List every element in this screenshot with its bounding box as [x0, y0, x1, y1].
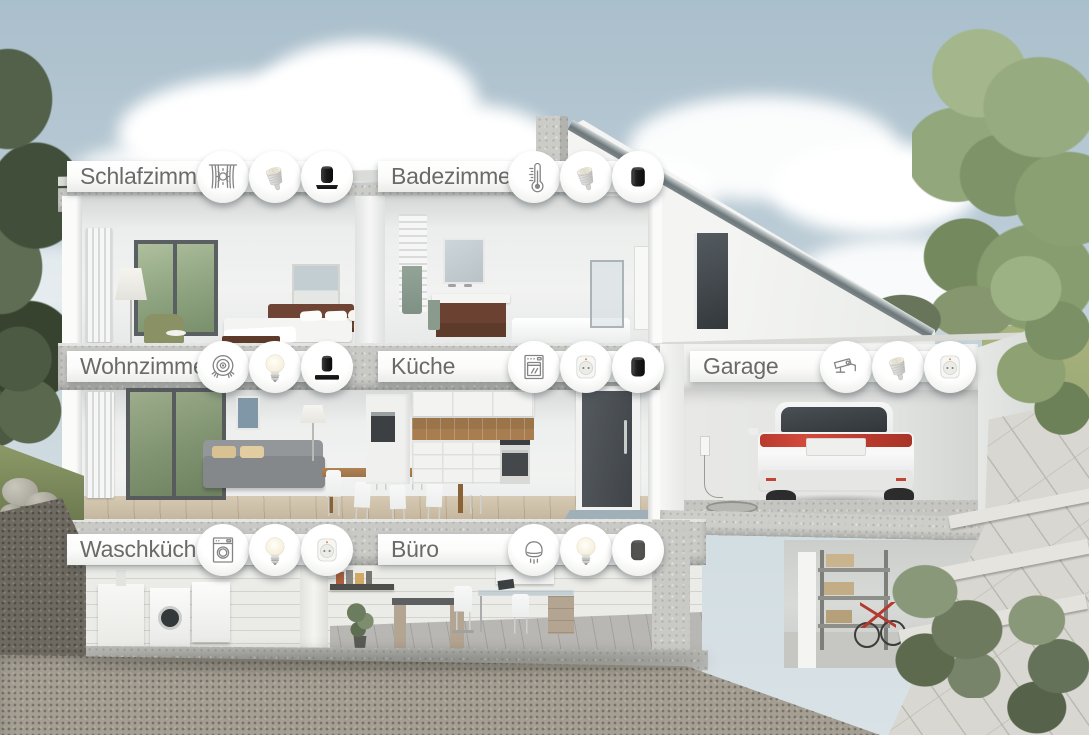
blinds-icon: [197, 151, 249, 203]
smart-home-cutaway-illustration: Schlafzimmer Badezimmer Wohnzimmer: [0, 0, 1089, 735]
e27-bulb-icon: [560, 524, 612, 576]
window: [697, 233, 728, 329]
towel: [402, 266, 422, 314]
wall-picture: [236, 396, 260, 430]
e27-bulb-icon: [249, 524, 301, 576]
floor-lamp-stem: [130, 300, 132, 348]
desk-leg: [480, 596, 482, 632]
wall-shelf: [330, 584, 394, 590]
office-chair-base: [452, 630, 474, 633]
armchair: [144, 314, 184, 344]
radiator: [86, 228, 112, 342]
dining-chair: [326, 470, 341, 516]
robot-vacuum-icon: [197, 341, 249, 393]
ev-charger: [700, 436, 710, 456]
oven-icon: [508, 341, 560, 393]
mirror: [443, 238, 485, 284]
vent-pipe: [116, 570, 126, 586]
shower-glass: [590, 260, 624, 328]
smart-speaker-soundbar-icon: [301, 341, 353, 393]
vanity-cabinet: [436, 303, 506, 337]
smart-plug-icon: [301, 524, 353, 576]
sofa-cushion: [212, 446, 236, 458]
gu10-bulb-icon: [872, 341, 924, 393]
washer-door: [158, 606, 182, 630]
cut-post: [798, 552, 816, 668]
office-chair: [454, 586, 472, 630]
towel: [428, 300, 440, 330]
sofa-cushion: [240, 446, 264, 458]
car-bumper: [760, 470, 912, 490]
house-shadow: [70, 652, 710, 670]
bush-icon: [1002, 582, 1089, 735]
car-reflector: [896, 478, 906, 481]
hedge: [0, 320, 64, 450]
desk-panel: [394, 605, 406, 649]
plant: [342, 598, 378, 640]
security-camera-icon: [820, 341, 872, 393]
storage-box: [826, 610, 852, 623]
bush-icon: [876, 546, 1016, 698]
car-reflector: [766, 478, 776, 481]
car-license-plate: [806, 438, 866, 456]
desk-cabinet: [548, 596, 574, 634]
kitchen-upper-cabinets: [412, 392, 534, 416]
built-in-oven: [371, 412, 395, 442]
gu10-bulb-icon: [249, 151, 301, 203]
floor-lamp-stem: [312, 423, 314, 461]
kitchen-backsplash: [412, 418, 534, 440]
gu10-bulb-icon: [560, 151, 612, 203]
thermometer-icon: [508, 151, 560, 203]
book: [355, 573, 364, 584]
storage-box: [824, 582, 854, 595]
cut-wall: [62, 196, 82, 348]
glass-door-mullion: [172, 392, 176, 496]
range-oven-door: [502, 450, 528, 476]
smart-speaker-fabric-icon: [612, 524, 664, 576]
smart-speaker-base-icon: [301, 151, 353, 203]
washing-machine-icon: [197, 524, 249, 576]
faucet: [464, 284, 472, 287]
e27-bulb-icon: [249, 341, 301, 393]
tree-icon: [984, 236, 1089, 446]
heater-icon: [508, 524, 560, 576]
interior-wall: [355, 196, 385, 348]
office-chair: [512, 594, 529, 634]
book: [346, 570, 353, 584]
ev-cable: [704, 455, 723, 498]
vanity-top: [432, 294, 510, 303]
radiator: [86, 392, 114, 498]
bed-pillow: [300, 310, 323, 322]
car-rear-window: [781, 407, 887, 432]
sofa-base: [203, 456, 325, 488]
dryer: [192, 582, 230, 642]
bed-pillow: [325, 311, 347, 322]
car-side-mirror: [748, 428, 758, 435]
kitchen-counter: [412, 440, 500, 484]
floor-lamp: [300, 405, 326, 423]
book: [366, 571, 372, 584]
ventilation-unit: [98, 584, 144, 654]
faucet: [448, 284, 456, 287]
shelf-upright: [820, 550, 824, 650]
smart-plug-icon: [560, 341, 612, 393]
side-table: [166, 330, 186, 336]
cut-wall: [648, 196, 662, 348]
smart-speaker-icon: [612, 151, 664, 203]
storage-box: [826, 554, 854, 567]
smart-plug-icon: [924, 341, 976, 393]
range-cooktop: [500, 440, 530, 445]
door-handle: [624, 420, 627, 454]
smart-speaker-icon: [612, 341, 664, 393]
